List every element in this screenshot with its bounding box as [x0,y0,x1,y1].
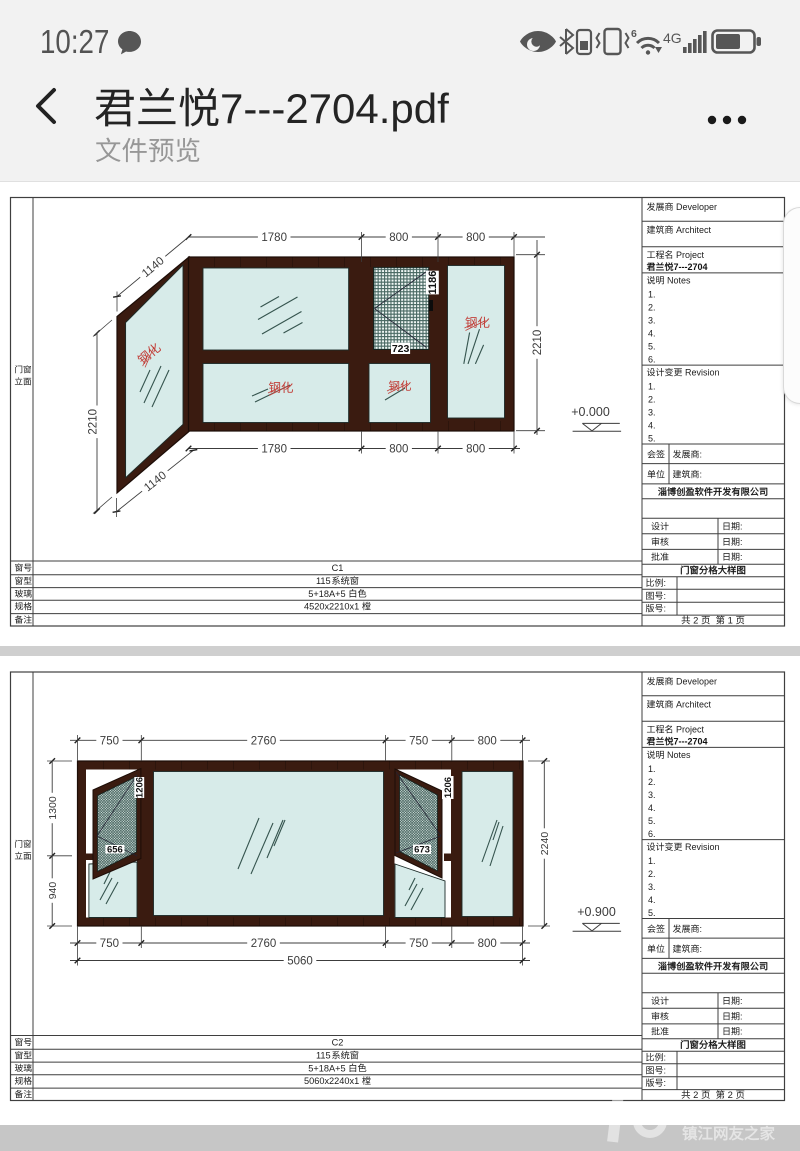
svg-text:4G: 4G [663,30,682,46]
svg-text:1.: 1. [648,290,656,300]
svg-text:5.: 5. [648,434,656,444]
svg-text:1.: 1. [648,764,656,774]
svg-text:1186: 1186 [427,271,439,295]
svg-text::: : [740,537,743,547]
svg-text:723: 723 [392,343,410,355]
svg-text:10:27: 10:27 [40,24,109,61]
svg-text:800: 800 [389,444,408,456]
svg-text:5.: 5. [648,908,656,918]
svg-text:115: 115 [316,576,331,586]
svg-text:5+18A+5: 5+18A+5 [308,589,345,599]
svg-text:Project: Project [676,725,705,735]
svg-text:800: 800 [466,444,485,456]
svg-text:115: 115 [316,1051,331,1061]
svg-text:Notes: Notes [667,750,691,760]
svg-text:750: 750 [100,735,119,747]
svg-text:800: 800 [478,735,497,747]
svg-text:3.: 3. [648,882,656,892]
svg-text:800: 800 [389,232,408,244]
svg-text:1.: 1. [648,856,656,866]
svg-text::: : [700,944,703,954]
svg-text:5.: 5. [648,816,656,826]
svg-text:4520x2210x1: 4520x2210x1 [304,602,359,612]
svg-text:C1: C1 [332,563,344,573]
svg-text::: : [740,996,743,1006]
svg-text:2: 2 [693,615,698,626]
svg-text:4.: 4. [648,421,656,431]
svg-text:673: 673 [414,845,430,856]
svg-text:3.: 3. [648,408,656,418]
svg-text:940: 940 [47,882,59,900]
svg-text:2.: 2. [648,777,656,787]
svg-text:Architect: Architect [676,700,712,710]
svg-text:3.: 3. [648,316,656,326]
svg-text:2.: 2. [648,395,656,405]
svg-text:Notes: Notes [667,276,691,286]
svg-text:800: 800 [478,938,497,950]
svg-text:6.: 6. [648,355,656,365]
svg-text::: : [664,1066,667,1076]
svg-text:4.: 4. [648,329,656,339]
svg-text:+0.900: +0.900 [577,905,616,919]
svg-text:+0.000: +0.000 [571,405,610,419]
svg-text::: : [700,470,703,480]
svg-text:2760: 2760 [251,735,277,747]
svg-text:2210: 2210 [88,409,100,435]
svg-text:.com: .com [737,1113,765,1127]
svg-text:750: 750 [100,938,119,950]
svg-text::: : [740,552,743,562]
svg-text:3.: 3. [648,790,656,800]
svg-text:Developer: Developer [676,202,717,212]
svg-text:1300: 1300 [47,796,59,820]
svg-text:1206: 1206 [135,777,146,798]
svg-text::: : [740,1027,743,1037]
svg-text:6: 6 [631,28,637,40]
svg-text:1: 1 [728,615,733,626]
svg-text:Developer: Developer [676,677,717,687]
svg-text:750: 750 [409,735,428,747]
svg-text:6.: 6. [648,829,656,839]
svg-text::: : [700,924,703,934]
svg-text:1.: 1. [648,382,656,392]
svg-text:2.: 2. [648,303,656,313]
svg-text:5060: 5060 [287,956,313,968]
svg-text:5060x2240x1: 5060x2240x1 [304,1076,359,1086]
svg-text::: : [740,522,743,532]
svg-text:1206: 1206 [443,777,454,798]
svg-text:C2: C2 [332,1037,344,1047]
svg-text:2210: 2210 [532,330,544,356]
svg-text:5.: 5. [648,342,656,352]
svg-text:656: 656 [107,845,123,856]
svg-text::: : [664,604,667,614]
svg-text:Project: Project [676,250,705,260]
svg-text:7---2704.pdf: 7---2704.pdf [220,85,449,132]
svg-text::: : [664,578,667,588]
svg-text:7---2704: 7---2704 [674,737,708,747]
svg-text::: : [664,591,667,601]
svg-text:5+18A+5: 5+18A+5 [308,1063,345,1073]
svg-text:Revision: Revision [685,842,720,852]
svg-text:2240: 2240 [539,832,551,856]
svg-text:1780: 1780 [261,444,287,456]
svg-text:2760: 2760 [251,938,277,950]
svg-text:2.: 2. [648,869,656,879]
svg-text::: : [664,1053,667,1063]
svg-text:7---2704: 7---2704 [674,262,708,272]
svg-text:800: 800 [466,232,485,244]
svg-text:Revision: Revision [685,368,720,378]
svg-text:1780: 1780 [261,232,287,244]
svg-text:750: 750 [409,938,428,950]
svg-text:4.: 4. [648,895,656,905]
svg-text::: : [740,1012,743,1022]
svg-text:4.: 4. [648,803,656,813]
svg-text::: : [700,450,703,460]
svg-text:Architect: Architect [676,225,712,235]
